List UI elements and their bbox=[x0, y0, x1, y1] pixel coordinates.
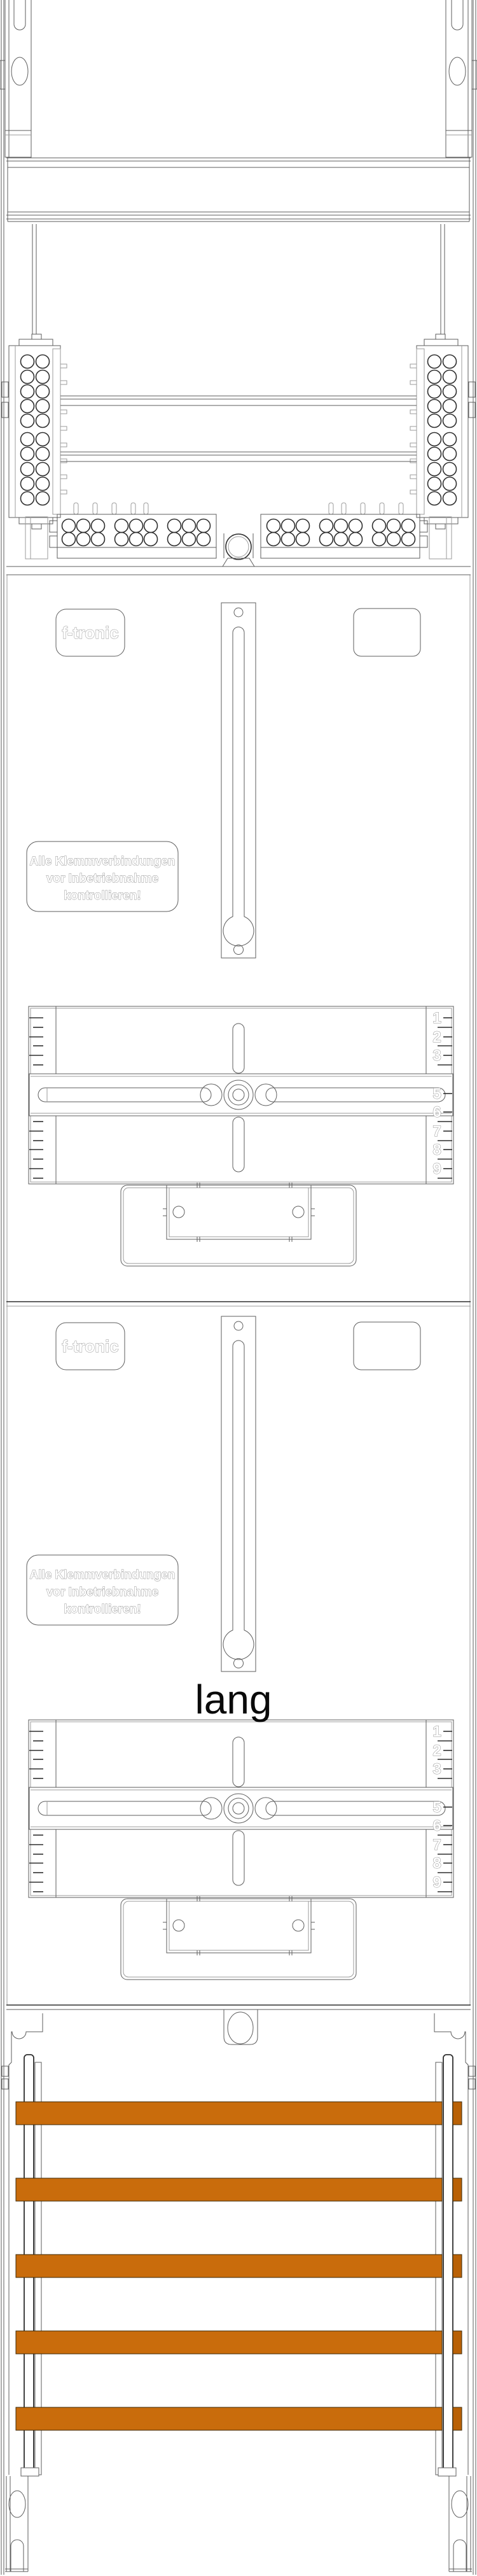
center-connector bbox=[223, 533, 254, 567]
busbar-2 bbox=[16, 2178, 442, 2201]
section-divider-bottom bbox=[6, 2005, 471, 2009]
busbar-2-cap bbox=[453, 2178, 462, 2201]
meter-panel-2 bbox=[27, 1316, 453, 1980]
terminal-strip-left bbox=[25, 503, 216, 559]
meter-cabinet-drawing: f-tronic Alle Klemmverbindungen vor Inbe… bbox=[0, 0, 477, 2576]
cabinet-svg: f-tronic Alle Klemmverbindungen vor Inbe… bbox=[0, 0, 477, 2576]
panel-divider bbox=[6, 1302, 471, 1306]
terminal-area bbox=[2, 334, 475, 575]
top-frame bbox=[0, 0, 477, 334]
busbar-1 bbox=[16, 2102, 442, 2125]
busbar-1-cap bbox=[453, 2102, 462, 2125]
rail-feet bbox=[21, 2468, 456, 2476]
busbar-4 bbox=[16, 2331, 442, 2354]
hanger-wires bbox=[32, 224, 445, 334]
section-divider-top bbox=[6, 567, 471, 575]
terminal-strip-right bbox=[261, 503, 452, 559]
busbar-supports bbox=[60, 396, 417, 461]
busbar-5 bbox=[16, 2407, 442, 2430]
bottom-rail-left bbox=[5, 2476, 28, 2572]
bottom-rail-right bbox=[449, 2476, 472, 2572]
busbars bbox=[16, 2102, 462, 2430]
busbar-4-cap bbox=[453, 2331, 462, 2354]
meter-panel-1 bbox=[27, 603, 453, 1266]
top-rail-right bbox=[446, 0, 477, 157]
busbar-3 bbox=[16, 2255, 442, 2277]
edge-clips bbox=[2, 382, 475, 418]
length-annotation: lang bbox=[195, 1677, 272, 1722]
din-rail-band bbox=[6, 158, 471, 222]
lower-connection-section bbox=[2, 2009, 475, 2572]
top-rail-left bbox=[0, 0, 31, 157]
busbar-3-cap bbox=[453, 2255, 462, 2277]
seal-oval-tab bbox=[224, 2009, 258, 2045]
busbar-5-cap bbox=[453, 2407, 462, 2430]
terminal-block-right bbox=[410, 334, 468, 529]
terminal-block-left bbox=[9, 334, 67, 529]
